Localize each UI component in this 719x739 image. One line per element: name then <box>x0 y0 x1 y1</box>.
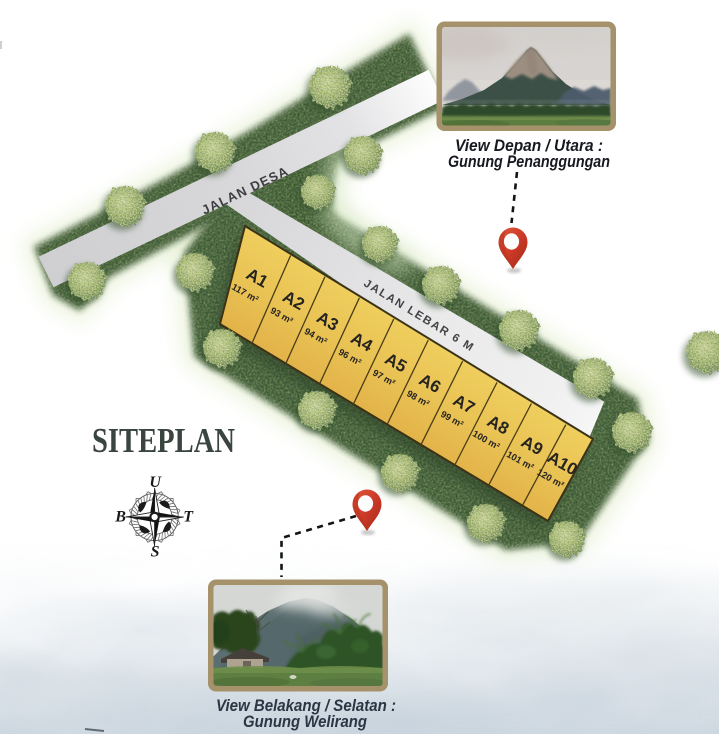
svg-text:U: U <box>149 474 162 491</box>
svg-text:SITEPLAN: SITEPLAN <box>92 421 235 460</box>
svg-text:Gunung Penanggungan: Gunung Penanggungan <box>448 152 610 171</box>
svg-text:T: T <box>183 509 194 526</box>
svg-text:Gunung Welirang: Gunung Welirang <box>243 712 368 731</box>
svg-text:S: S <box>151 544 160 561</box>
svg-text:B: B <box>114 509 126 526</box>
